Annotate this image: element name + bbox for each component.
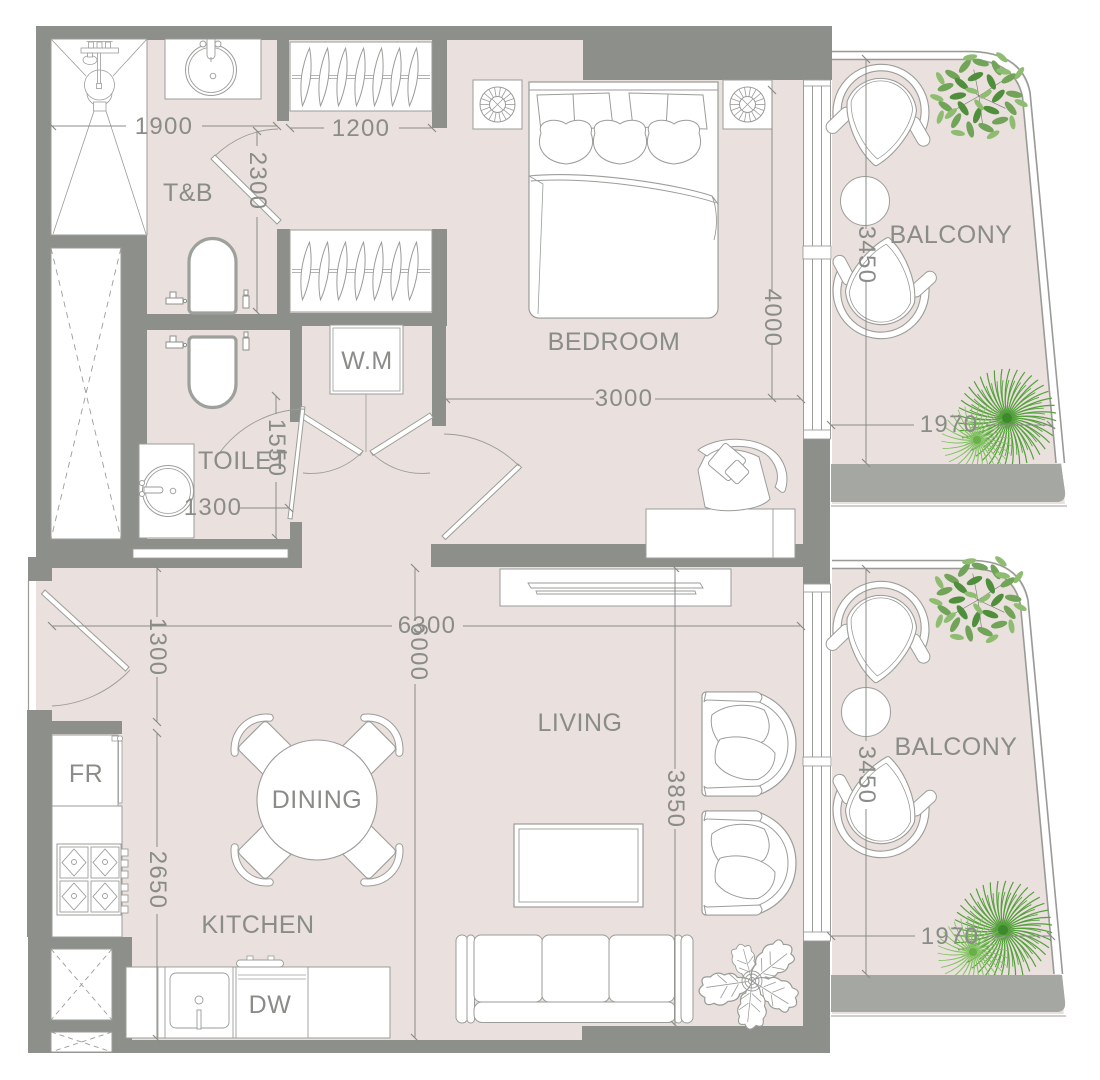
svg-text:BEDROOM: BEDROOM xyxy=(548,328,681,356)
svg-text:2650: 2650 xyxy=(144,851,171,910)
svg-text:BALCONY: BALCONY xyxy=(890,221,1013,249)
svg-text:TOILET: TOILET xyxy=(198,447,288,475)
svg-text:1300: 1300 xyxy=(184,494,243,521)
svg-text:1200: 1200 xyxy=(332,115,391,142)
svg-text:KITCHEN: KITCHEN xyxy=(201,911,314,939)
svg-text:2300: 2300 xyxy=(244,152,271,211)
svg-text:T&B: T&B xyxy=(163,179,213,207)
svg-text:DINING: DINING xyxy=(272,786,363,814)
svg-text:BALCONY: BALCONY xyxy=(895,733,1018,761)
svg-text:FR: FR xyxy=(69,760,103,788)
svg-text:LIVING: LIVING xyxy=(538,709,623,737)
svg-text:1970: 1970 xyxy=(920,411,979,438)
svg-text:1970: 1970 xyxy=(921,923,980,950)
svg-text:1300: 1300 xyxy=(144,618,171,677)
svg-text:3000: 3000 xyxy=(595,385,654,412)
svg-text:6000: 6000 xyxy=(405,623,432,682)
svg-text:3850: 3850 xyxy=(662,770,689,829)
svg-text:4000: 4000 xyxy=(759,289,786,348)
svg-text:1900: 1900 xyxy=(135,113,194,140)
svg-text:W.M: W.M xyxy=(341,347,393,375)
svg-text:3450: 3450 xyxy=(853,746,880,805)
svg-text:3450: 3450 xyxy=(853,226,880,285)
svg-text:DW: DW xyxy=(249,991,292,1019)
